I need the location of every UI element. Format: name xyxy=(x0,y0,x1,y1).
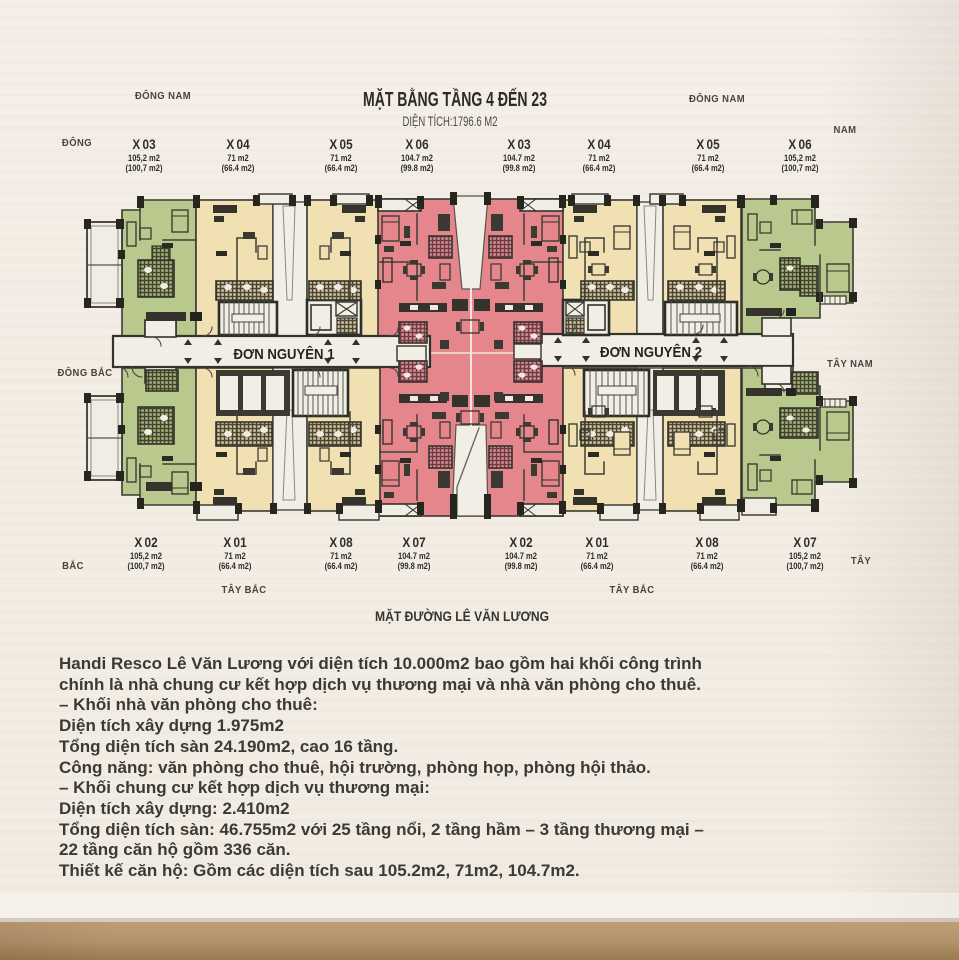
svg-text:MẶT ĐƯỜNG LÊ VĂN LƯƠNG: MẶT ĐƯỜNG LÊ VĂN LƯƠNG xyxy=(375,607,549,624)
svg-text:ĐƠN NGUYÊN 1: ĐƠN NGUYÊN 1 xyxy=(234,345,335,363)
svg-text:ĐƠN NGUYÊN 2: ĐƠN NGUYÊN 2 xyxy=(600,343,702,361)
svg-text:MẶT BẰNG TẦNG 4 ĐẾN 23: MẶT BẰNG TẦNG 4 ĐẾN 23 xyxy=(363,87,547,111)
svg-text:DIỆN TÍCH:1796.6 M2: DIỆN TÍCH:1796.6 M2 xyxy=(403,114,498,129)
